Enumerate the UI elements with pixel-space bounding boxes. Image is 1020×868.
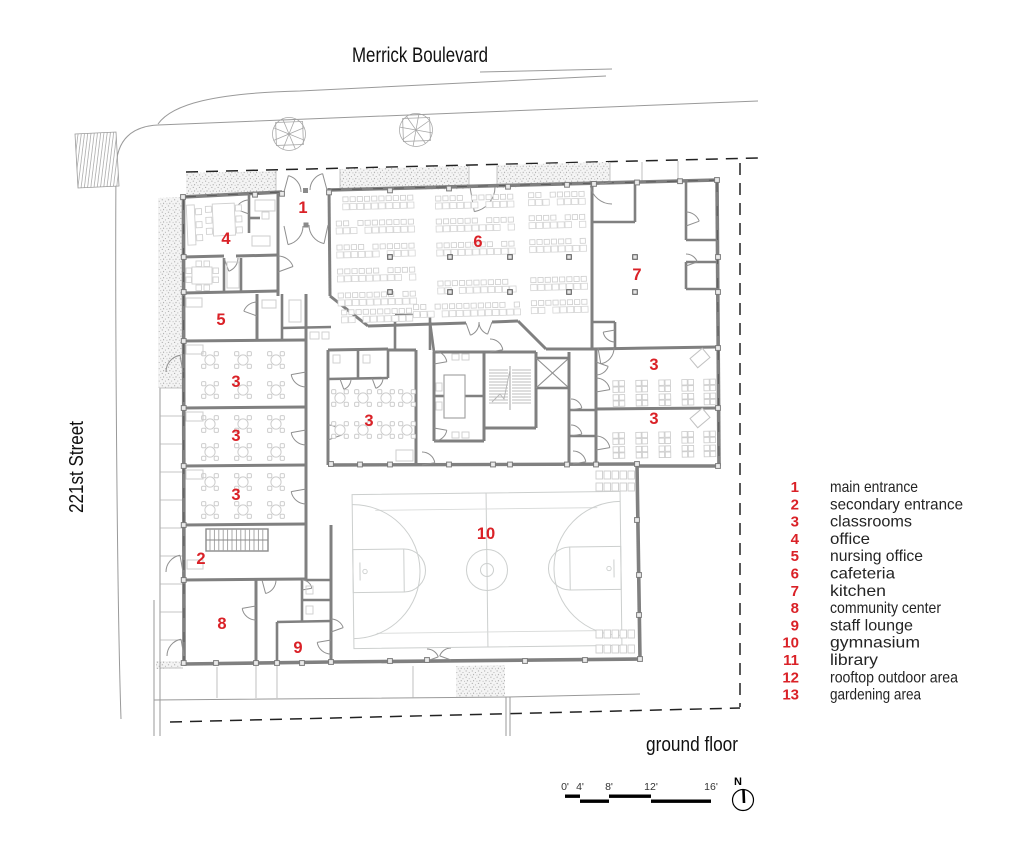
svg-text:3: 3 xyxy=(649,356,658,374)
svg-text:staff lounge: staff lounge xyxy=(830,617,913,634)
svg-text:13: 13 xyxy=(782,687,799,704)
svg-text:2: 2 xyxy=(791,496,799,513)
svg-text:8': 8' xyxy=(605,781,613,793)
svg-text:library: library xyxy=(830,652,878,669)
svg-text:8: 8 xyxy=(791,600,799,617)
svg-text:4: 4 xyxy=(791,531,800,548)
svg-text:9: 9 xyxy=(293,639,302,657)
svg-text:kitchen: kitchen xyxy=(830,583,886,600)
svg-text:cafeteria: cafeteria xyxy=(830,566,895,583)
svg-text:5: 5 xyxy=(791,548,799,565)
svg-text:3: 3 xyxy=(791,514,799,531)
svg-text:main entrance: main entrance xyxy=(830,479,918,496)
svg-text:11: 11 xyxy=(783,652,799,669)
svg-text:3: 3 xyxy=(364,412,373,430)
svg-text:16': 16' xyxy=(704,781,718,793)
svg-text:ground floor: ground floor xyxy=(646,734,738,756)
svg-text:gardening area: gardening area xyxy=(830,687,921,704)
svg-text:3: 3 xyxy=(231,486,240,504)
svg-text:5: 5 xyxy=(216,311,225,329)
svg-text:2: 2 xyxy=(196,550,205,568)
svg-text:community center: community center xyxy=(830,600,942,617)
svg-text:9: 9 xyxy=(791,617,799,634)
svg-text:0': 0' xyxy=(561,781,569,793)
svg-text:Merrick Boulevard: Merrick Boulevard xyxy=(352,44,488,67)
svg-text:8: 8 xyxy=(217,615,226,633)
svg-text:N: N xyxy=(734,776,742,788)
svg-text:1: 1 xyxy=(298,199,307,217)
svg-text:3: 3 xyxy=(231,427,240,445)
svg-text:12: 12 xyxy=(782,669,799,686)
svg-text:12': 12' xyxy=(644,781,658,793)
svg-text:office: office xyxy=(830,531,870,548)
svg-text:rooftop outdoor area: rooftop outdoor area xyxy=(830,669,958,686)
svg-text:4: 4 xyxy=(221,230,231,248)
svg-text:nursing office: nursing office xyxy=(830,548,923,565)
svg-text:3: 3 xyxy=(231,373,240,391)
svg-text:gymnasium: gymnasium xyxy=(830,635,920,652)
svg-text:6: 6 xyxy=(473,233,482,251)
svg-text:10: 10 xyxy=(477,525,495,543)
svg-text:10: 10 xyxy=(782,635,799,652)
svg-text:secondary entrance: secondary entrance xyxy=(830,496,963,513)
svg-text:classrooms: classrooms xyxy=(830,514,912,531)
svg-text:4': 4' xyxy=(576,781,584,793)
svg-text:3: 3 xyxy=(649,410,658,428)
svg-text:7: 7 xyxy=(791,583,799,600)
svg-text:1: 1 xyxy=(791,479,799,496)
svg-text:6: 6 xyxy=(791,566,799,583)
svg-text:221st Street: 221st Street xyxy=(66,421,88,513)
svg-text:7: 7 xyxy=(632,266,641,284)
